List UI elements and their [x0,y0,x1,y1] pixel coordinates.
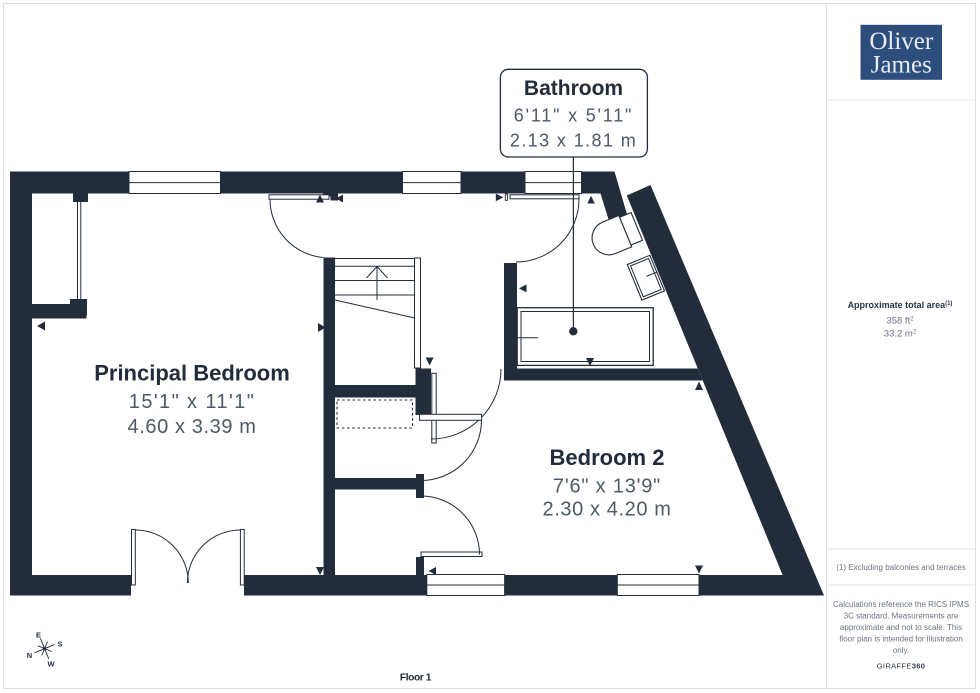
svg-text:358 ft2: 358 ft2 [886,316,914,327]
svg-text:Calculations reference the RIC: Calculations reference the RICS IPMS [833,600,969,609]
svg-text:(1) Excluding balconies and te: (1) Excluding balconies and terraces [836,563,965,572]
svg-text:3C standard. Measurements are: 3C standard. Measurements are [844,612,959,621]
svg-text:2.13 x 1.81 m: 2.13 x 1.81 m [510,131,637,151]
svg-text:Principal Bedroom: Principal Bedroom [94,361,290,386]
svg-text:W: W [47,660,55,669]
svg-text:Bathroom: Bathroom [524,77,623,100]
svg-text:floor plan is intended for ill: floor plan is intended for illustration [839,635,963,644]
svg-text:GIRAFFE360: GIRAFFE360 [877,662,926,671]
svg-text:only.: only. [893,646,909,655]
svg-text:33.2 m2: 33.2 m2 [884,329,917,340]
svg-text:N: N [27,651,32,660]
svg-text:2.30 x 4.20 m: 2.30 x 4.20 m [543,499,672,521]
svg-text:approximate and not to scale.: approximate and not to scale. This [840,623,962,632]
svg-text:James: James [871,52,932,79]
svg-text:7'6" x 13'9": 7'6" x 13'9" [553,476,661,498]
svg-text:Bedroom 2: Bedroom 2 [550,445,665,470]
svg-text:Approximate total area(1): Approximate total area(1) [848,300,953,310]
svg-text:Floor 1: Floor 1 [400,673,432,684]
svg-text:6'11" x 5'11": 6'11" x 5'11" [514,106,633,126]
svg-text:S: S [57,640,62,649]
svg-text:E: E [36,630,41,639]
svg-text:4.60 x 3.39 m: 4.60 x 3.39 m [128,416,257,438]
svg-text:15'1" x 11'1": 15'1" x 11'1" [129,391,255,413]
